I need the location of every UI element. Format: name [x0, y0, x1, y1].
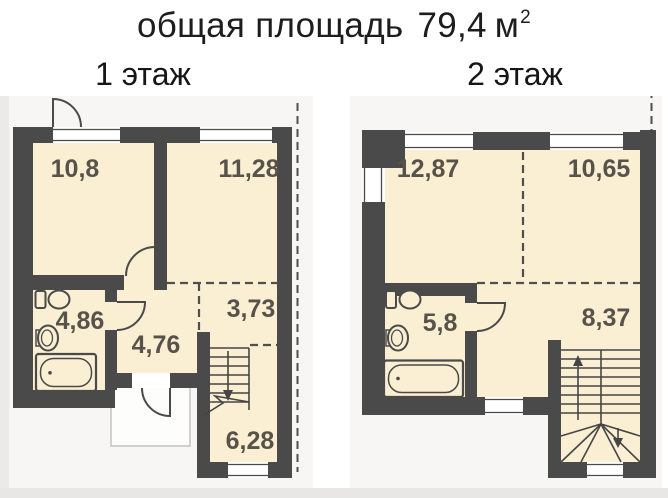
room-area-label: 10,65 — [568, 155, 631, 183]
room-area-label: 5,8 — [423, 309, 458, 337]
entry-porch — [111, 386, 190, 446]
page-title: общая площадь79,4м2 — [0, 6, 668, 46]
title-superscript: 2 — [520, 7, 531, 28]
toilet-bowl-icon — [400, 291, 421, 309]
floor-2-plan: 12,87 10,65 5,8 8,37 — [350, 96, 662, 488]
room-area-label: 12,87 — [397, 155, 460, 183]
title-value: 79,4 — [417, 6, 486, 45]
room-area-label: 6,28 — [226, 427, 275, 455]
bathtub-drain-icon — [48, 371, 52, 375]
floor-1-plan: 10,8 11,28 3,73 4,86 4,76 6,28 — [8, 96, 313, 488]
toilet-icon — [386, 291, 396, 308]
room-area-label: 4,76 — [132, 331, 181, 359]
toilet-bowl-icon — [49, 291, 70, 309]
room-area-label: 11,28 — [218, 155, 279, 183]
title-label: общая площадь — [137, 6, 404, 45]
bathtub-drain-icon — [396, 377, 400, 381]
room-area-label: 4,86 — [56, 307, 105, 335]
main-entry-opening — [132, 373, 170, 388]
bathtub-icon — [36, 354, 96, 391]
left-edge-strip — [0, 96, 9, 488]
bottom-edge-strip — [0, 488, 668, 498]
room-area-label: 3,73 — [227, 295, 276, 323]
floorplan-page: общая площадь79,4м2 1 этаж 2 этаж — [0, 0, 668, 498]
title-unit: м — [495, 6, 519, 45]
floor-2-label: 2 этаж — [430, 56, 600, 93]
room-area-label: 8,37 — [582, 304, 631, 332]
toilet-icon — [36, 291, 46, 308]
room-area-label: 10,8 — [51, 155, 100, 183]
floor-1-label: 1 этаж — [58, 56, 228, 93]
